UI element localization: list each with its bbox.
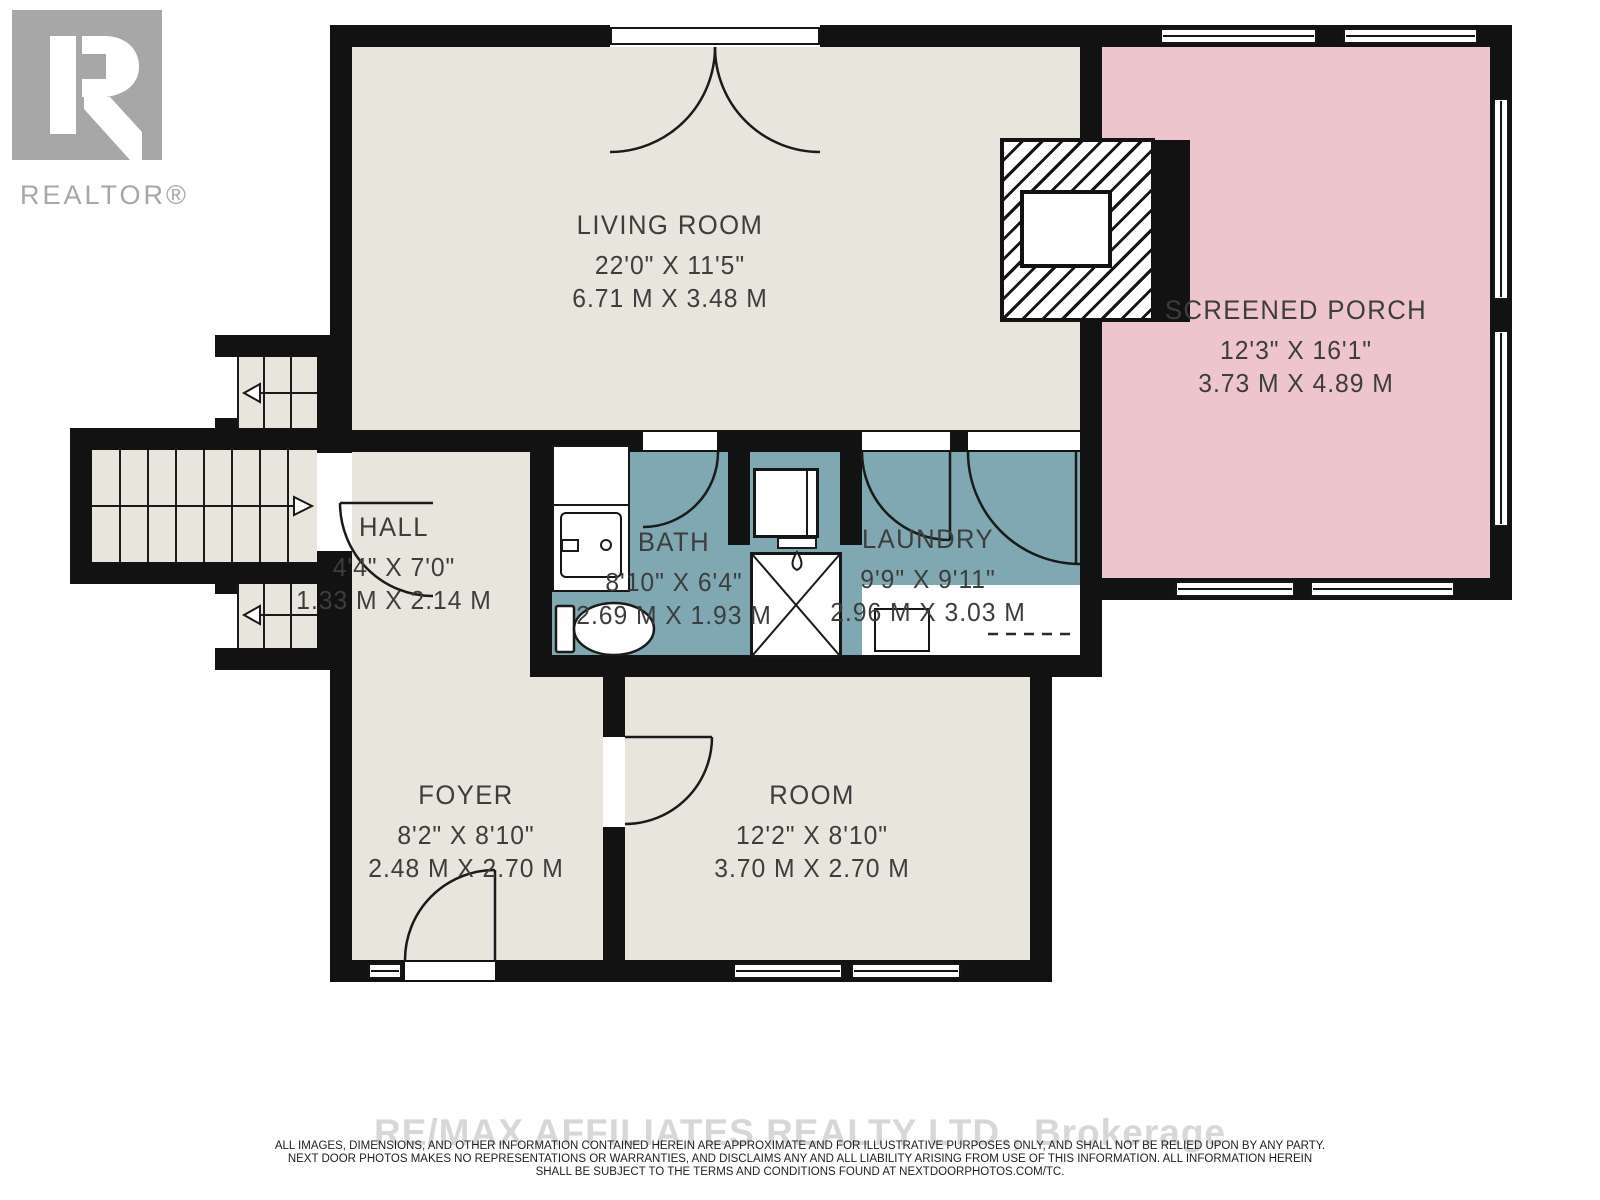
wall: [1030, 677, 1052, 982]
realtor-logo-text: REALTOR®: [20, 180, 200, 211]
door-opening[interactable]: [862, 432, 950, 450]
room-name: ROOM: [622, 780, 1002, 811]
room-dimensions-metric: 3.70 M X 2.70 M: [622, 852, 1002, 885]
room-dimensions-metric: 2.96 M X 3.03 M: [738, 596, 1118, 629]
door-opening[interactable]: [968, 432, 1080, 450]
door-opening[interactable]: [643, 432, 717, 450]
room-dimensions-imperial: 12'2" X 8'10": [622, 819, 1002, 852]
window: [1175, 581, 1295, 597]
room-dimensions-imperial: 9'9" X 9'11": [738, 563, 1118, 596]
realtor-logo-icon: [12, 10, 162, 160]
window: [1160, 28, 1317, 44]
room-name: SCREENED PORCH: [1106, 295, 1486, 326]
window: [368, 963, 402, 979]
room-label: ROOM 12'2" X 8'10" 3.70 M X 2.70 M: [622, 780, 1002, 885]
room-dimensions-imperial: 22'0" X 11'5": [480, 249, 860, 282]
wall: [530, 655, 1102, 677]
room-dimensions-metric: 3.73 M X 4.89 M: [1106, 367, 1486, 400]
room-name: LIVING ROOM: [480, 210, 860, 241]
living-room-label: LIVING ROOM 22'0" X 11'5" 6.71 M X 3.48 …: [480, 210, 860, 315]
room-name: LAUNDRY: [738, 524, 1118, 555]
wall: [820, 25, 1102, 47]
window: [1493, 98, 1509, 300]
window: [851, 963, 961, 979]
double-door-panel[interactable]: [610, 27, 820, 45]
fireplace-firebox: [1020, 190, 1112, 268]
wall: [330, 25, 352, 335]
room-dimensions-metric: 6.71 M X 3.48 M: [480, 282, 860, 315]
stair-upper-area: [237, 357, 317, 429]
window: [1343, 28, 1478, 44]
wall: [1080, 25, 1102, 140]
window: [1310, 581, 1455, 597]
room-dimensions-imperial: 12'3" X 16'1": [1106, 334, 1486, 367]
room-dimensions-metric: 2.48 M X 2.70 M: [276, 852, 656, 885]
disclaimer-line: NEXT DOOR PHOTOS MAKES NO REPRESENTATION…: [0, 1153, 1600, 1165]
floor-plan-canvas: LIVING ROOM 22'0" X 11'5" 6.71 M X 3.48 …: [0, 0, 1600, 1200]
disclaimer-line: ALL IMAGES, DIMENSIONS, AND OTHER INFORM…: [0, 1140, 1600, 1152]
realtor-logo: REALTOR®: [12, 10, 202, 220]
disclaimer-line: SHALL BE SUBJECT TO THE TERMS AND CONDIT…: [0, 1166, 1600, 1178]
screened-porch-label: SCREENED PORCH 12'3" X 16'1" 3.73 M X 4.…: [1106, 295, 1486, 400]
room-name: FOYER: [276, 780, 656, 811]
window: [1493, 330, 1509, 527]
window: [733, 963, 843, 979]
room-dimensions-imperial: 8'2" X 8'10": [276, 819, 656, 852]
wall: [215, 335, 352, 357]
laundry-label: LAUNDRY 9'9" X 9'11" 2.96 M X 3.03 M: [738, 524, 1118, 629]
wall: [215, 418, 237, 428]
foyer-label: FOYER 8'2" X 8'10" 2.48 M X 2.70 M: [276, 780, 656, 885]
wall: [330, 25, 610, 47]
entry-door-opening[interactable]: [405, 962, 495, 980]
